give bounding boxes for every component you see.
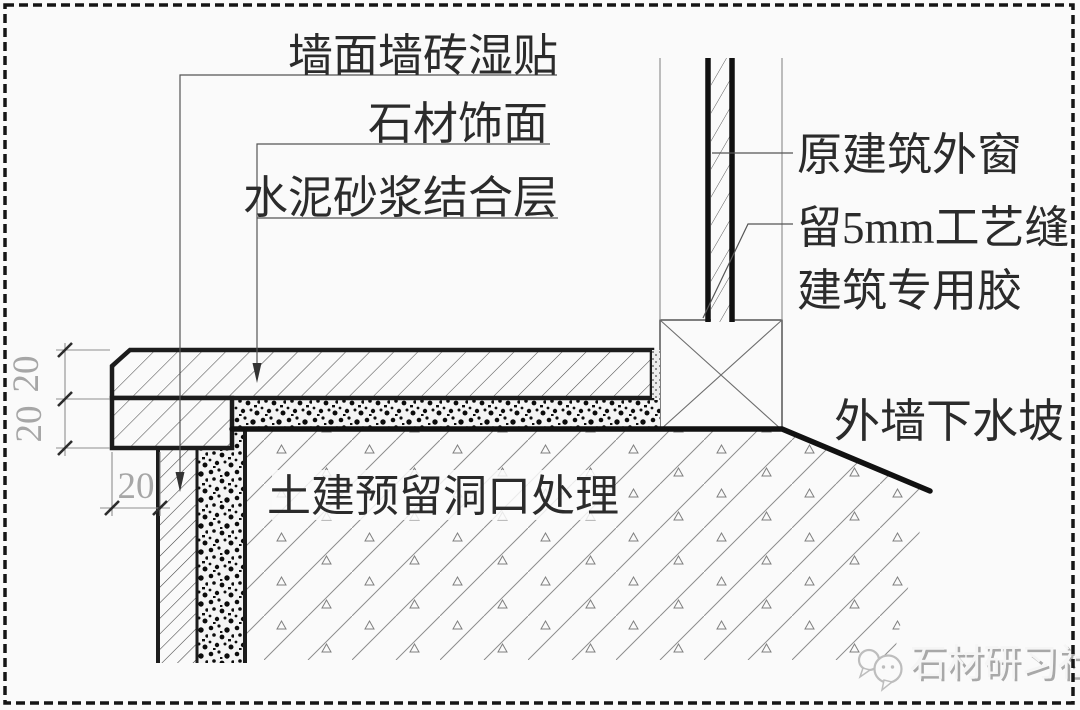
label-drain-slope: 外墙下水坡	[834, 396, 1064, 447]
concrete-body	[245, 431, 928, 660]
dim-mortar-thickness: 20	[9, 406, 50, 443]
process-seam	[652, 350, 660, 398]
dim-stone-thickness: 20	[6, 356, 47, 393]
label-original-window: 原建筑外窗	[797, 130, 1022, 180]
detail-drawing-canvas: 20 20 20 墙面墙砖湿贴 石材饰面 水泥砂浆结合层 原建筑外窗 留5mm工…	[0, 0, 1080, 710]
label-stone-finish: 石材饰面	[368, 99, 548, 149]
mortar-bed	[232, 400, 660, 427]
label-adhesive: 建筑专用胶	[797, 266, 1022, 316]
drawing-svg: 20 20 20 墙面墙砖湿贴 石材饰面 水泥砂浆结合层 原建筑外窗 留5mm工…	[0, 0, 1080, 710]
watermark-text: 石材研习社	[910, 643, 1080, 685]
window-frame	[660, 58, 782, 322]
label-process-seam: 留5mm工艺缝	[797, 203, 1070, 253]
stone-slab	[112, 350, 652, 398]
label-wall-tile: 墙面墙砖湿贴	[288, 31, 558, 81]
stone-edge-block	[112, 398, 232, 448]
label-opening-treatment: 土建预留洞口处理	[267, 472, 619, 521]
label-cement-mortar: 水泥砂浆结合层	[243, 173, 558, 223]
dim-edge-offset: 20	[118, 466, 155, 507]
mortar-strip	[197, 429, 245, 663]
window-sill-block	[660, 320, 782, 430]
